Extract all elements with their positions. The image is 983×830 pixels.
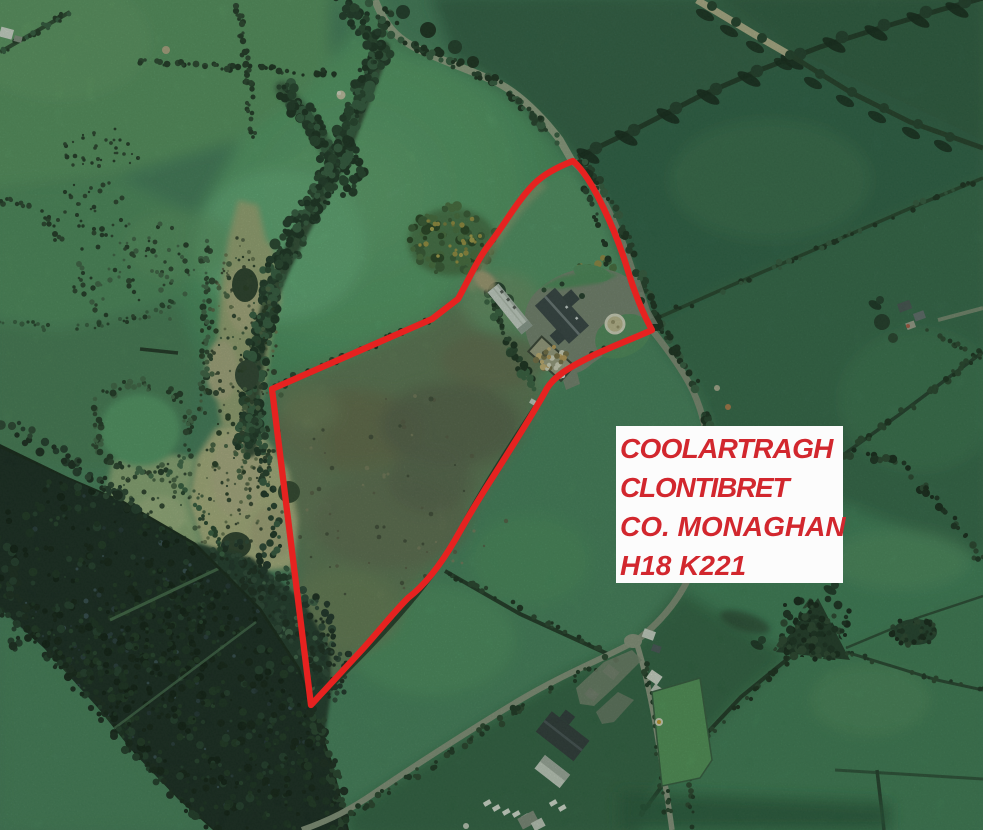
- svg-text:H18 K221: H18 K221: [620, 550, 746, 581]
- svg-text:CO. MONAGHAN: CO. MONAGHAN: [620, 511, 846, 542]
- svg-text:CLONTIBRET: CLONTIBRET: [620, 472, 793, 503]
- svg-text:COOLARTRAGH: COOLARTRAGH: [620, 433, 834, 464]
